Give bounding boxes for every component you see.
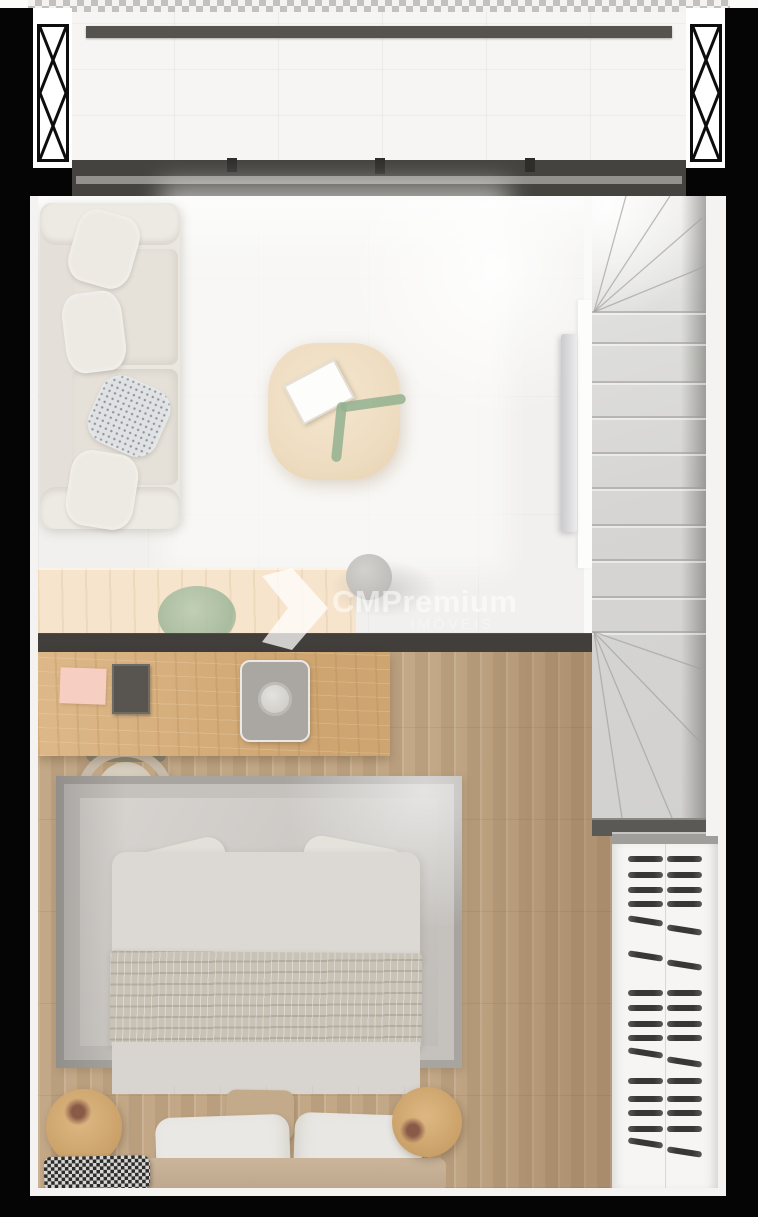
clothes-hanger xyxy=(628,1047,664,1058)
clothes-hanger xyxy=(628,915,664,926)
tablet-device xyxy=(112,664,150,714)
wall-column-right xyxy=(690,24,722,162)
clothes-hanger xyxy=(667,872,702,878)
bed-throw-blanket xyxy=(110,951,423,1050)
window-mullion xyxy=(525,158,535,172)
window-sill-line xyxy=(76,176,682,184)
clothes-hanger xyxy=(628,1035,663,1041)
chevron-arrow-logo-icon xyxy=(256,566,332,652)
window-mullion xyxy=(227,158,237,172)
clothes-hanger xyxy=(628,1110,663,1116)
wall-outline-left xyxy=(30,196,38,1196)
column-x-brace-icon xyxy=(693,27,719,159)
clothes-hanger xyxy=(628,1078,663,1084)
wall-below-column-left xyxy=(0,168,72,196)
clothes-hanger xyxy=(628,990,663,996)
wall-top-right xyxy=(725,8,758,162)
wall-outline-right-lower xyxy=(718,836,726,1196)
tv-screen xyxy=(561,334,577,532)
wardrobe xyxy=(612,844,718,1188)
clothes-hanger xyxy=(667,1035,702,1041)
clothes-hanger xyxy=(628,856,663,862)
wall-outline-bottom xyxy=(30,1188,726,1196)
houndstooth-cushion xyxy=(44,1155,151,1191)
watermark-subtitle: IMÓVEIS xyxy=(332,616,494,633)
clothes-hanger xyxy=(628,901,663,907)
clothes-hanger xyxy=(667,1005,702,1011)
watermark-brand: CMPremium xyxy=(332,584,517,620)
bed-headboard xyxy=(116,1158,446,1192)
staircase xyxy=(592,196,706,836)
clothes-hanger xyxy=(667,1110,702,1116)
side-stool-left xyxy=(46,1089,122,1165)
clothes-hanger xyxy=(667,1078,702,1084)
side-stool-right xyxy=(392,1087,462,1157)
bowl xyxy=(258,682,292,716)
clothes-hanger xyxy=(667,1096,702,1102)
clothes-hanger xyxy=(667,959,703,970)
clothes-hanger xyxy=(667,1021,702,1027)
wall-outline-right-upper xyxy=(706,196,726,836)
clothes-hanger xyxy=(628,887,663,893)
background-left xyxy=(0,196,30,1217)
balcony-railing xyxy=(86,26,672,38)
wardrobe-top-rail xyxy=(612,832,718,844)
clothes-hanger xyxy=(667,1126,702,1132)
wall-column-left xyxy=(37,24,69,162)
column-x-brace-icon xyxy=(40,27,66,159)
clothes-hanger xyxy=(667,887,702,893)
background-right xyxy=(726,196,758,1217)
wall-top-left xyxy=(0,8,33,162)
clothes-hanger xyxy=(628,1137,664,1148)
window-mullion xyxy=(375,158,385,174)
clothes-hanger xyxy=(667,901,702,907)
wardrobe-hangers xyxy=(628,844,702,1188)
clothes-hanger xyxy=(667,1146,703,1157)
pink-notepad xyxy=(59,667,106,705)
clothes-hanger xyxy=(667,990,702,996)
clothes-hanger xyxy=(667,856,702,862)
clothes-hanger xyxy=(628,950,664,961)
background-bottom xyxy=(0,1196,758,1217)
stair-treads xyxy=(592,196,706,836)
clothes-hanger xyxy=(667,924,703,935)
clothes-hanger xyxy=(628,872,663,878)
clothes-hanger xyxy=(667,1056,703,1067)
tv-wall xyxy=(578,300,592,568)
clothes-hanger xyxy=(628,1005,663,1011)
watermark: CMPremium IMÓVEIS xyxy=(256,566,506,656)
clothes-hanger xyxy=(628,1126,663,1132)
wall-below-column-right xyxy=(686,168,758,196)
sofa-pillow xyxy=(59,289,128,376)
clothes-hanger xyxy=(628,1096,663,1102)
floorplan-render: CMPremium IMÓVEIS xyxy=(0,0,758,1217)
clothes-hanger xyxy=(628,1021,663,1027)
bed-duvet-top xyxy=(112,852,420,960)
